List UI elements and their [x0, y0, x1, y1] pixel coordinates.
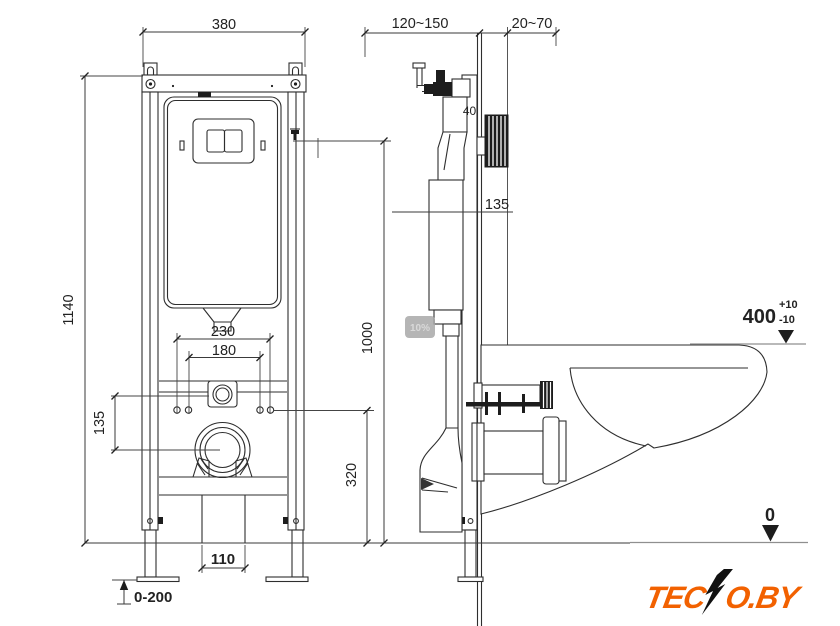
- dim-inlet-drain-offset: 135: [92, 411, 108, 435]
- dim-outlet-width: 110: [211, 551, 235, 568]
- logo-text-part1: TEC: [643, 582, 707, 613]
- dim-finish-range: 20~70: [512, 16, 553, 32]
- watermark-label: 10%: [410, 323, 430, 334]
- rim-datum-triangle: [778, 330, 794, 344]
- dim-frame-width: 380: [212, 17, 236, 33]
- front-view: [137, 63, 318, 582]
- hanger-tabs: [144, 63, 302, 75]
- inlet-crossbrace: [159, 381, 287, 407]
- dim-rim-height: 400: [743, 306, 776, 328]
- dim-profile-depth: 40: [463, 104, 477, 118]
- dim-rim-tol-minus: -10: [779, 314, 795, 326]
- technical-drawing-page: 380 1140 230 180 135 320: [0, 0, 840, 626]
- logo-text-part2: O.BY: [723, 582, 800, 613]
- dim-foot-adjustment: 0-200: [134, 589, 172, 606]
- adjustable-feet: [137, 517, 308, 582]
- top-crossbar: [142, 75, 306, 92]
- drain-elbow: [420, 428, 462, 532]
- dim-depth-range: 120~150: [392, 16, 449, 32]
- dim-actuator-height: 1000: [360, 322, 376, 354]
- dim-fixing-outer: 230: [211, 324, 235, 340]
- installation-drawing: 380 1140 230 180 135 320: [0, 0, 840, 626]
- flush-plate: [180, 119, 265, 163]
- outlet-pipe-front: [202, 495, 245, 543]
- dim-fixing-inner: 180: [212, 343, 236, 359]
- floor-datum-triangle: [762, 525, 779, 542]
- cistern-side: [429, 180, 463, 310]
- flush-pipe-side: [434, 310, 461, 428]
- dim-rim-tol-plus: +10: [779, 299, 798, 311]
- dim-drain-height: 320: [344, 463, 360, 487]
- dim-cistern-offset: 135: [485, 197, 509, 213]
- dim-floor-level: 0: [765, 505, 775, 525]
- dim-frame-height: 1140: [61, 294, 77, 325]
- toilet-bowl: [481, 345, 767, 514]
- watermark-badge: 10%: [405, 316, 435, 338]
- tecno-by-logo: TEC O.BY: [642, 572, 831, 622]
- bowl-connectors: [466, 381, 566, 484]
- water-supply-valve: [413, 63, 470, 97]
- lower-crossbar: [159, 477, 287, 495]
